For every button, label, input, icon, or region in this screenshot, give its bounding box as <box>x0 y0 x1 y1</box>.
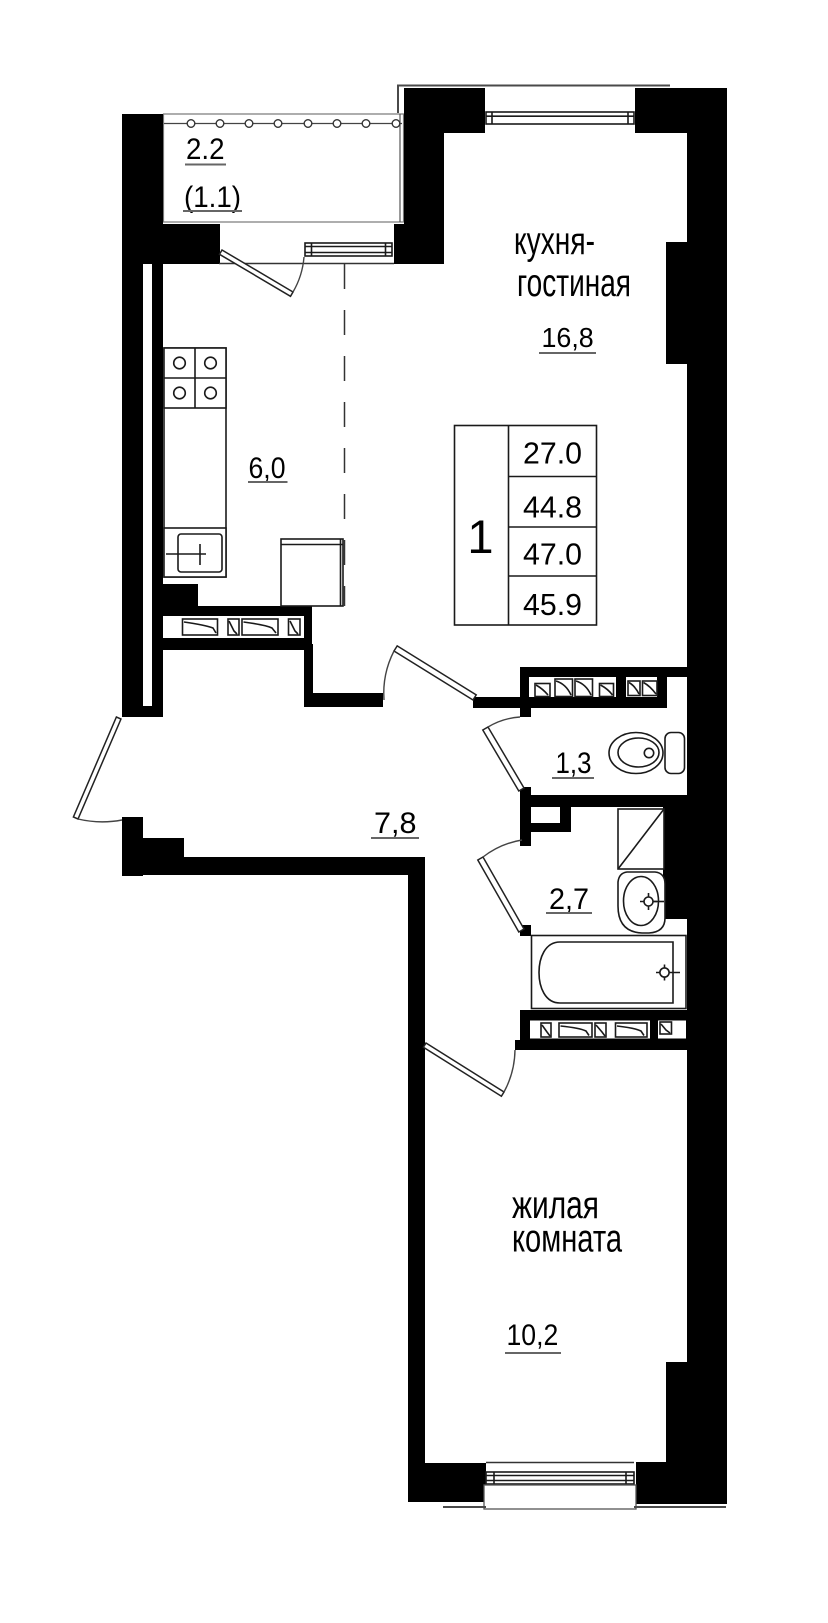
svg-text:44.8: 44.8 <box>523 490 582 525</box>
svg-text:6,0: 6,0 <box>249 452 286 485</box>
svg-text:2.2: 2.2 <box>186 133 225 166</box>
svg-text:комната: комната <box>512 1218 622 1261</box>
svg-text:1,3: 1,3 <box>556 747 592 780</box>
svg-text:7,8: 7,8 <box>374 807 417 840</box>
svg-text:45.9: 45.9 <box>523 587 582 622</box>
svg-text:16,8: 16,8 <box>542 322 594 353</box>
svg-text:кухня-: кухня- <box>514 220 595 263</box>
svg-text:(1.1): (1.1) <box>184 181 241 214</box>
svg-text:гостиная: гостиная <box>517 262 631 305</box>
svg-text:27.0: 27.0 <box>523 436 582 471</box>
svg-text:47.0: 47.0 <box>523 537 582 572</box>
svg-text:2,7: 2,7 <box>549 883 589 916</box>
svg-text:1: 1 <box>467 510 493 563</box>
svg-text:10,2: 10,2 <box>507 1319 559 1352</box>
